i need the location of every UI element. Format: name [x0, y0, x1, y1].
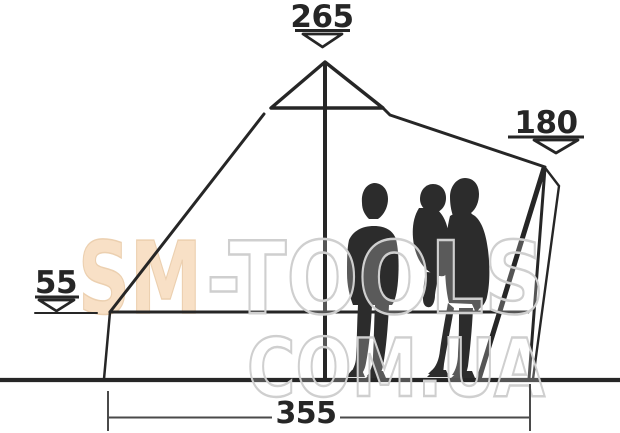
watermark-tools-text: -TOOLS: [206, 220, 545, 337]
down-arrow-marker-peak: [303, 34, 342, 47]
watermark-sm-text: SM: [78, 220, 202, 337]
person-left-head: [362, 183, 388, 219]
down-arrow-marker-wall: [39, 300, 74, 311]
dimension-door-height: 180: [508, 105, 584, 153]
floor-width-value: 355: [275, 396, 336, 431]
diagram-canvas: SM: [0, 0, 620, 433]
down-arrow-marker-door: [534, 140, 578, 153]
watermark-brand-first: SM: [78, 220, 202, 337]
dimension-wall-height: 55: [35, 265, 79, 311]
dimension-peak-height: 265: [290, 0, 353, 47]
tent-dimension-diagram: SM: [0, 0, 620, 433]
watermark-overlay: -TOOLS COM.UA: [206, 220, 545, 415]
